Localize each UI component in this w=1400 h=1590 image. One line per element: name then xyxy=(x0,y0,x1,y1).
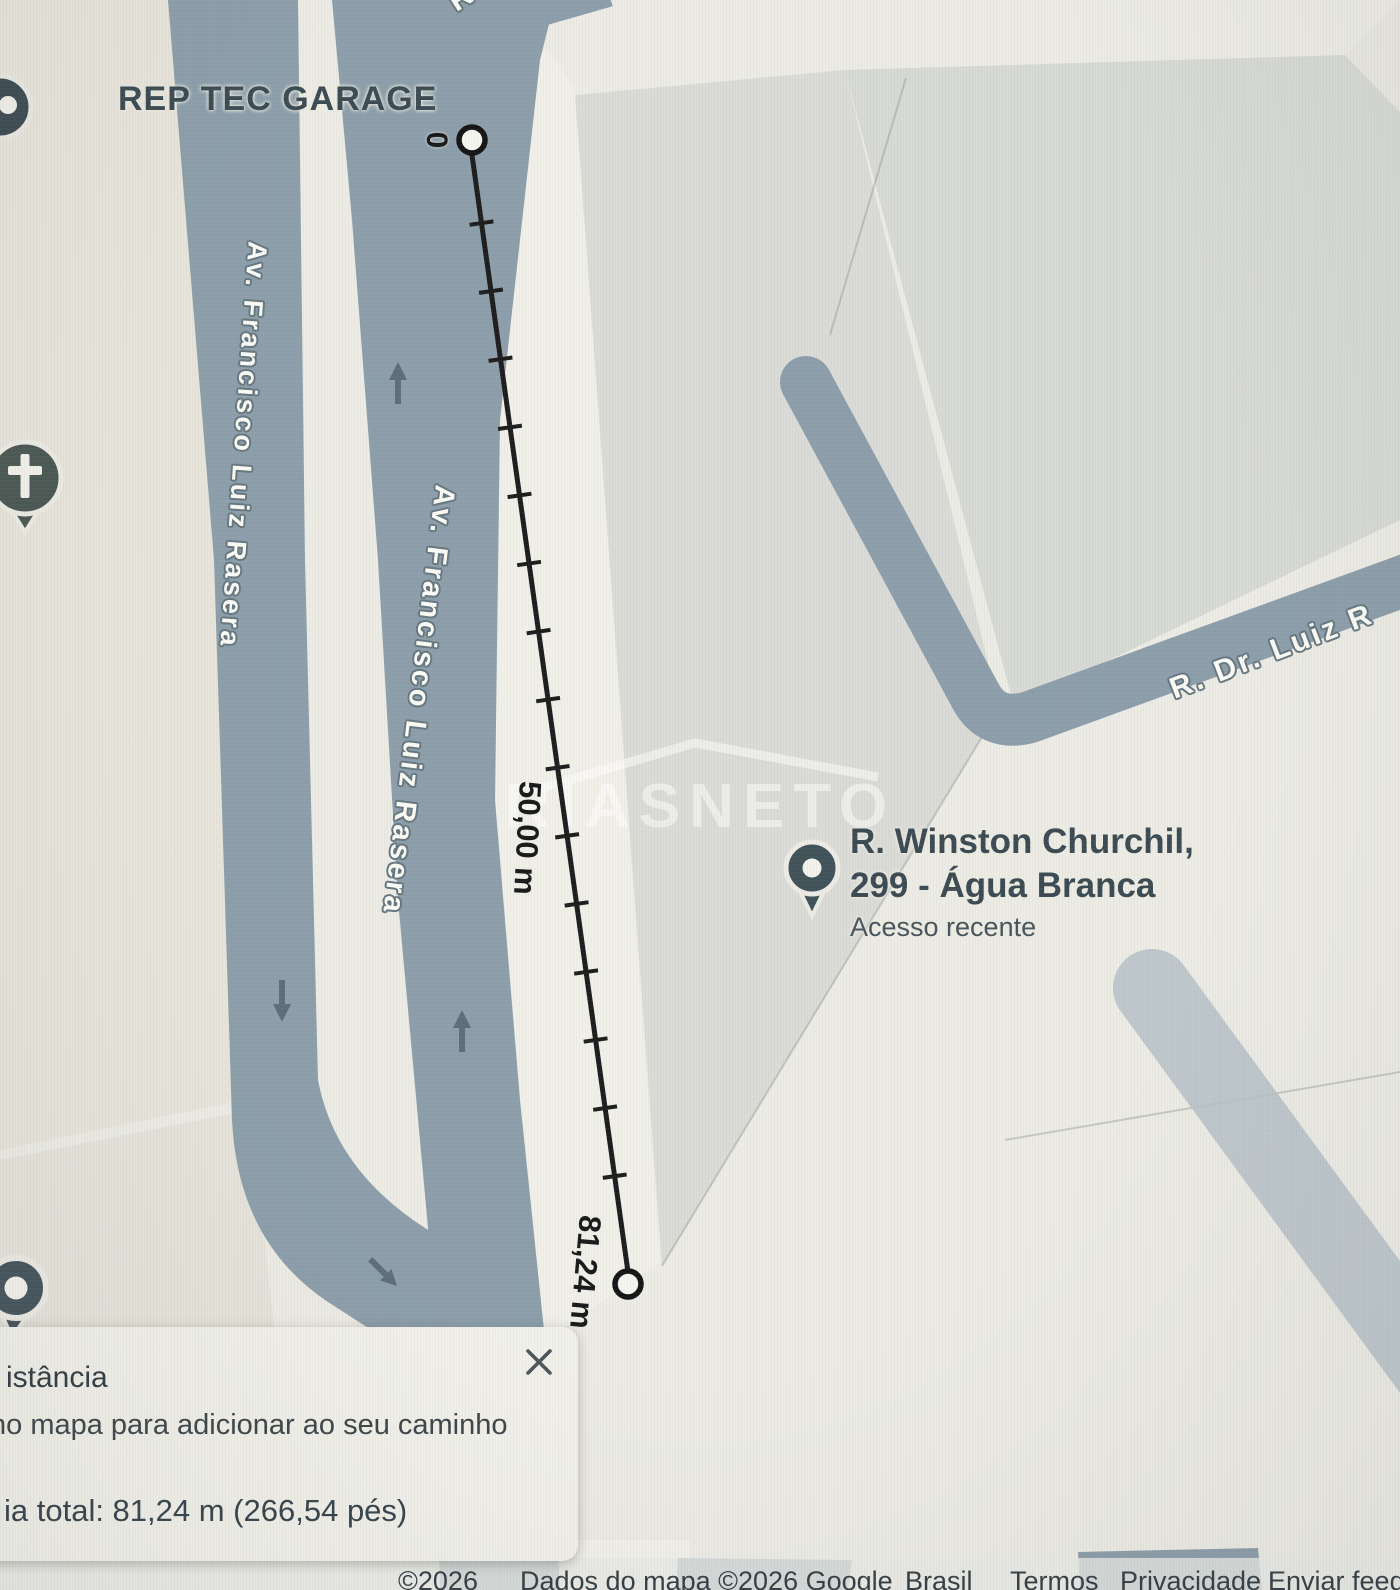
measurement-end-handle[interactable] xyxy=(615,1271,641,1297)
copyright-text: ©2026 xyxy=(398,1566,478,1590)
recent-place-subtitle: Acesso recente xyxy=(850,912,1194,943)
recent-place-label[interactable]: R. Winston Churchil, 299 - Água Branca A… xyxy=(850,822,1194,943)
recent-place-name-line2: 299 - Água Branca xyxy=(850,866,1194,906)
poi-garage-label[interactable]: REP TEC GARAGE xyxy=(118,80,437,119)
footer-link-feedback[interactable]: Enviar feedback xyxy=(1268,1566,1400,1590)
measurement-start-handle[interactable] xyxy=(459,127,485,153)
map-data-text: Dados do mapa ©2026 Google xyxy=(520,1566,893,1590)
panel-close-button[interactable] xyxy=(522,1345,556,1379)
footer-link-termos[interactable]: Termos xyxy=(1010,1566,1099,1590)
close-icon xyxy=(522,1345,556,1379)
panel-title: istância xyxy=(6,1361,108,1395)
panel-hint: no mapa para adicionar ao seu caminho xyxy=(0,1409,508,1442)
footer-link-privacidade[interactable]: Privacidade xyxy=(1120,1566,1261,1590)
measurement-start-label: 0 xyxy=(419,132,453,149)
panel-total-distance: ia total: 81,24 m (266,54 pés) xyxy=(4,1493,407,1529)
footer-link-brasil[interactable]: Brasil xyxy=(905,1566,973,1590)
measurement-mid-label: 50,00 m xyxy=(506,780,548,895)
attribution-bar: ©2026 Dados do mapa ©2026 Google Brasil … xyxy=(0,1558,1400,1590)
measure-distance-panel: istância no mapa para adicionar ao seu c… xyxy=(0,1327,578,1561)
recent-place-name-line1: R. Winston Churchil, xyxy=(850,822,1194,862)
